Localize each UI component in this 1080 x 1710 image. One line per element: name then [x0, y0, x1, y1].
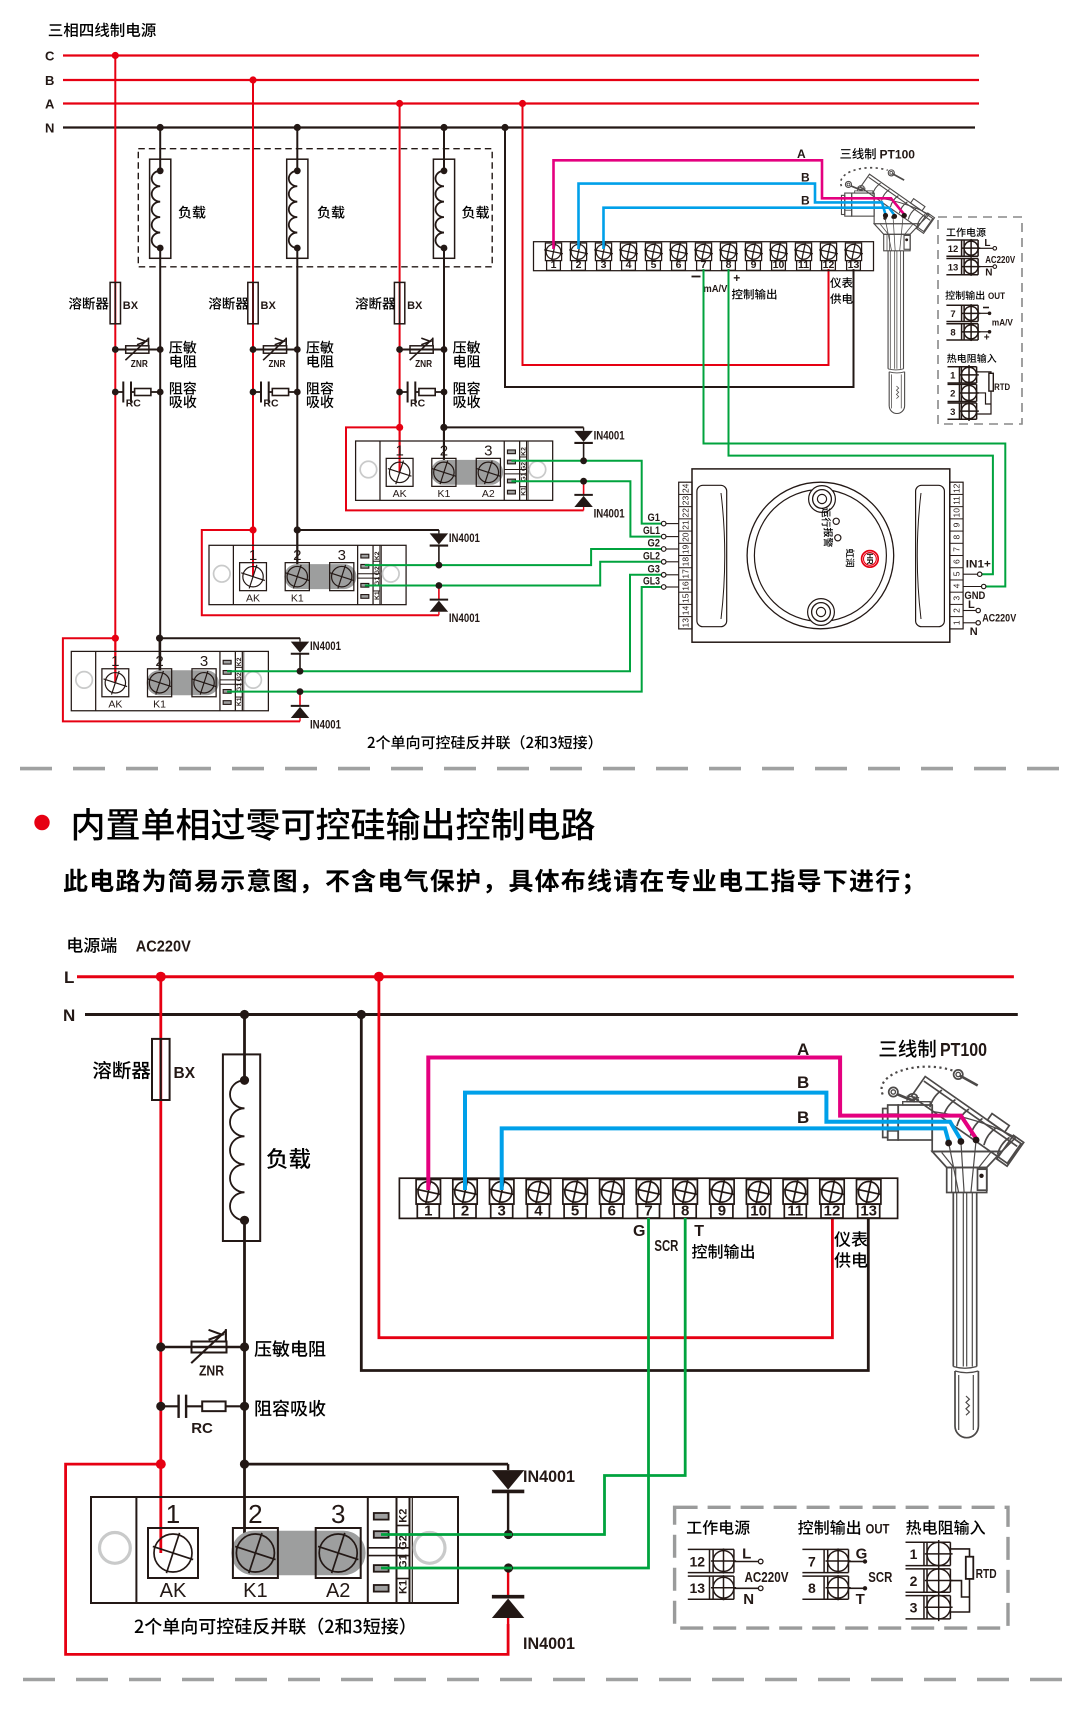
svg-text:+: +	[984, 333, 990, 344]
svg-text:1: 1	[249, 547, 257, 564]
svg-text:11: 11	[798, 259, 809, 271]
svg-text:GL3: GL3	[643, 576, 660, 588]
svg-text:IN4001: IN4001	[523, 1634, 575, 1653]
svg-text:C: C	[45, 49, 55, 64]
svg-text:K2: K2	[398, 1509, 410, 1523]
svg-text:G3: G3	[648, 563, 661, 575]
svg-text:4: 4	[626, 259, 632, 271]
svg-text:B: B	[45, 73, 54, 88]
svg-text:IN1+: IN1+	[966, 559, 991, 571]
svg-text:IN4001: IN4001	[594, 430, 625, 442]
svg-text:ZNR: ZNR	[415, 358, 432, 370]
svg-text:3: 3	[331, 1499, 345, 1529]
svg-text:ZNR: ZNR	[199, 1363, 224, 1380]
svg-text:2: 2	[248, 1499, 262, 1529]
svg-text:12: 12	[948, 244, 959, 255]
svg-text:12: 12	[824, 1203, 841, 1220]
svg-text:12: 12	[690, 1553, 706, 1569]
svg-text:AK: AK	[246, 592, 260, 604]
svg-text:T: T	[694, 1223, 704, 1240]
svg-text:A2: A2	[326, 1580, 350, 1602]
svg-text:2: 2	[950, 389, 955, 400]
svg-text:BX: BX	[174, 1065, 196, 1082]
svg-text:2: 2	[576, 259, 582, 271]
svg-text:18: 18	[681, 557, 691, 567]
svg-text:K1: K1	[520, 487, 527, 496]
svg-text:+: +	[733, 271, 740, 285]
svg-text:1: 1	[551, 259, 557, 271]
svg-text:4: 4	[952, 583, 962, 588]
svg-text:10: 10	[952, 508, 962, 518]
svg-text:2: 2	[155, 653, 163, 670]
svg-text:7: 7	[644, 1203, 652, 1220]
svg-text:6: 6	[676, 259, 682, 271]
svg-text:20: 20	[681, 532, 691, 542]
svg-text:RC: RC	[126, 398, 142, 410]
svg-text:4: 4	[534, 1203, 543, 1220]
svg-text:IN4001: IN4001	[449, 533, 480, 545]
svg-text:IN4001: IN4001	[310, 641, 341, 653]
svg-text:BX: BX	[123, 300, 139, 312]
svg-text:SCR: SCR	[654, 1238, 678, 1255]
svg-text:22: 22	[681, 508, 691, 518]
svg-text:PT100: PT100	[940, 1040, 987, 1060]
svg-text:BX: BX	[407, 300, 423, 312]
svg-text:K1: K1	[291, 592, 304, 604]
svg-text:16: 16	[681, 581, 691, 591]
svg-text:G1: G1	[648, 512, 661, 524]
svg-text:13: 13	[948, 262, 959, 273]
svg-text:L: L	[742, 1546, 751, 1563]
svg-text:IN4001: IN4001	[523, 1467, 575, 1486]
svg-text:17: 17	[681, 569, 691, 579]
svg-text:1: 1	[111, 653, 119, 670]
svg-text:9: 9	[718, 1203, 726, 1220]
svg-text:IN4001: IN4001	[449, 613, 480, 625]
svg-text:3: 3	[484, 443, 492, 460]
svg-text:A: A	[797, 147, 806, 161]
svg-text:2: 2	[440, 443, 448, 460]
svg-text:3: 3	[952, 596, 962, 601]
svg-text:21: 21	[681, 520, 691, 530]
svg-text:AC220V: AC220V	[985, 255, 1015, 266]
svg-text:BX: BX	[261, 300, 277, 312]
svg-text:HR: HR	[865, 553, 874, 565]
svg-text:13: 13	[848, 259, 860, 271]
svg-text:K1: K1	[243, 1580, 267, 1602]
svg-text:RC: RC	[410, 398, 426, 410]
svg-text:A: A	[797, 1040, 809, 1059]
svg-text:K1: K1	[437, 488, 450, 500]
svg-text:SCR: SCR	[868, 1570, 892, 1586]
svg-text:RC: RC	[263, 398, 279, 410]
svg-text:6: 6	[608, 1203, 616, 1220]
svg-text:2: 2	[952, 608, 962, 613]
svg-text:7: 7	[950, 309, 955, 320]
svg-text:5: 5	[571, 1203, 579, 1220]
svg-text:3: 3	[601, 259, 607, 271]
svg-text:AC220V: AC220V	[745, 1570, 789, 1586]
svg-text:N: N	[970, 626, 978, 638]
svg-text:1: 1	[166, 1499, 180, 1529]
svg-text:12: 12	[823, 259, 835, 271]
svg-text:19: 19	[681, 544, 691, 554]
svg-text:2: 2	[910, 1573, 918, 1589]
svg-text:8: 8	[808, 1580, 816, 1596]
svg-text:9: 9	[751, 259, 757, 271]
svg-text:5: 5	[952, 571, 962, 576]
svg-text:K2: K2	[520, 447, 527, 456]
svg-text:3: 3	[200, 653, 208, 670]
svg-text:1: 1	[952, 620, 962, 625]
svg-text:8: 8	[952, 535, 962, 540]
svg-text:10: 10	[773, 259, 785, 271]
svg-text:B: B	[801, 170, 810, 184]
svg-text:OUT: OUT	[866, 1522, 891, 1537]
svg-text:13: 13	[860, 1203, 877, 1220]
svg-text:14: 14	[681, 606, 691, 616]
svg-text:3: 3	[950, 407, 955, 418]
svg-text:8: 8	[950, 327, 955, 338]
svg-text:11: 11	[952, 496, 962, 505]
svg-text:G: G	[856, 1546, 868, 1563]
svg-text:RTD: RTD	[994, 382, 1010, 393]
svg-text:10: 10	[750, 1203, 767, 1220]
svg-text:mA/V: mA/V	[992, 318, 1014, 329]
svg-text:1: 1	[950, 370, 956, 381]
svg-text:K1: K1	[374, 591, 381, 600]
svg-text:9: 9	[952, 522, 962, 527]
svg-text:GL1: GL1	[643, 525, 660, 537]
svg-text:IN4001: IN4001	[310, 719, 341, 731]
svg-text:3: 3	[910, 1600, 918, 1616]
svg-text:7: 7	[952, 547, 962, 552]
svg-text:N: N	[45, 121, 54, 136]
svg-text:A: A	[45, 97, 55, 112]
svg-text:B: B	[797, 1073, 809, 1092]
svg-text:AK: AK	[393, 488, 407, 500]
svg-text:7: 7	[808, 1553, 816, 1569]
svg-text:PT100: PT100	[880, 149, 916, 161]
svg-text:mA/V: mA/V	[703, 283, 727, 295]
svg-text:A2: A2	[482, 488, 495, 500]
svg-text:K1: K1	[153, 698, 166, 710]
svg-text:13: 13	[690, 1580, 706, 1596]
svg-text:3: 3	[338, 547, 346, 564]
svg-text:5: 5	[651, 259, 657, 271]
svg-text:AK: AK	[160, 1580, 187, 1602]
svg-text:G: G	[633, 1223, 645, 1240]
svg-text:G2: G2	[648, 538, 661, 550]
svg-text:K2: K2	[374, 551, 381, 560]
svg-text:N: N	[63, 1006, 75, 1025]
svg-text:1: 1	[910, 1546, 918, 1562]
svg-text:L: L	[968, 599, 975, 611]
svg-text:N: N	[985, 268, 992, 279]
svg-text:1: 1	[424, 1203, 432, 1220]
svg-text:8: 8	[681, 1203, 689, 1220]
svg-text:OUT: OUT	[988, 291, 1005, 301]
svg-text:23: 23	[681, 496, 691, 506]
svg-text:6: 6	[952, 559, 962, 564]
svg-text:AC220V: AC220V	[982, 613, 1017, 625]
svg-text:1: 1	[395, 443, 403, 460]
svg-text:K1: K1	[398, 1580, 410, 1594]
svg-text:RC: RC	[191, 1420, 213, 1437]
svg-text:3: 3	[498, 1203, 506, 1220]
svg-text:12: 12	[952, 483, 962, 493]
svg-text:AC220V: AC220V	[136, 939, 192, 956]
svg-text:2: 2	[293, 547, 301, 564]
svg-text:11: 11	[787, 1203, 803, 1220]
svg-text:T: T	[856, 1591, 865, 1608]
svg-text:N: N	[743, 1591, 754, 1608]
svg-text:ZNR: ZNR	[131, 358, 148, 370]
svg-text:13: 13	[681, 618, 691, 628]
svg-text:15: 15	[681, 593, 691, 603]
svg-text:24: 24	[681, 483, 691, 493]
svg-text:AK: AK	[108, 698, 122, 710]
svg-text:B: B	[801, 193, 810, 207]
svg-text:GL2: GL2	[643, 550, 660, 562]
svg-text:L: L	[64, 968, 74, 987]
svg-text:K1: K1	[236, 697, 243, 706]
svg-text:2: 2	[461, 1203, 469, 1220]
svg-text:K2: K2	[236, 657, 243, 666]
svg-text:L: L	[984, 238, 990, 249]
svg-text:IN4001: IN4001	[594, 508, 625, 520]
svg-text:B: B	[797, 1108, 809, 1127]
svg-text:ZNR: ZNR	[269, 358, 286, 370]
svg-text:RTD: RTD	[976, 1566, 997, 1581]
